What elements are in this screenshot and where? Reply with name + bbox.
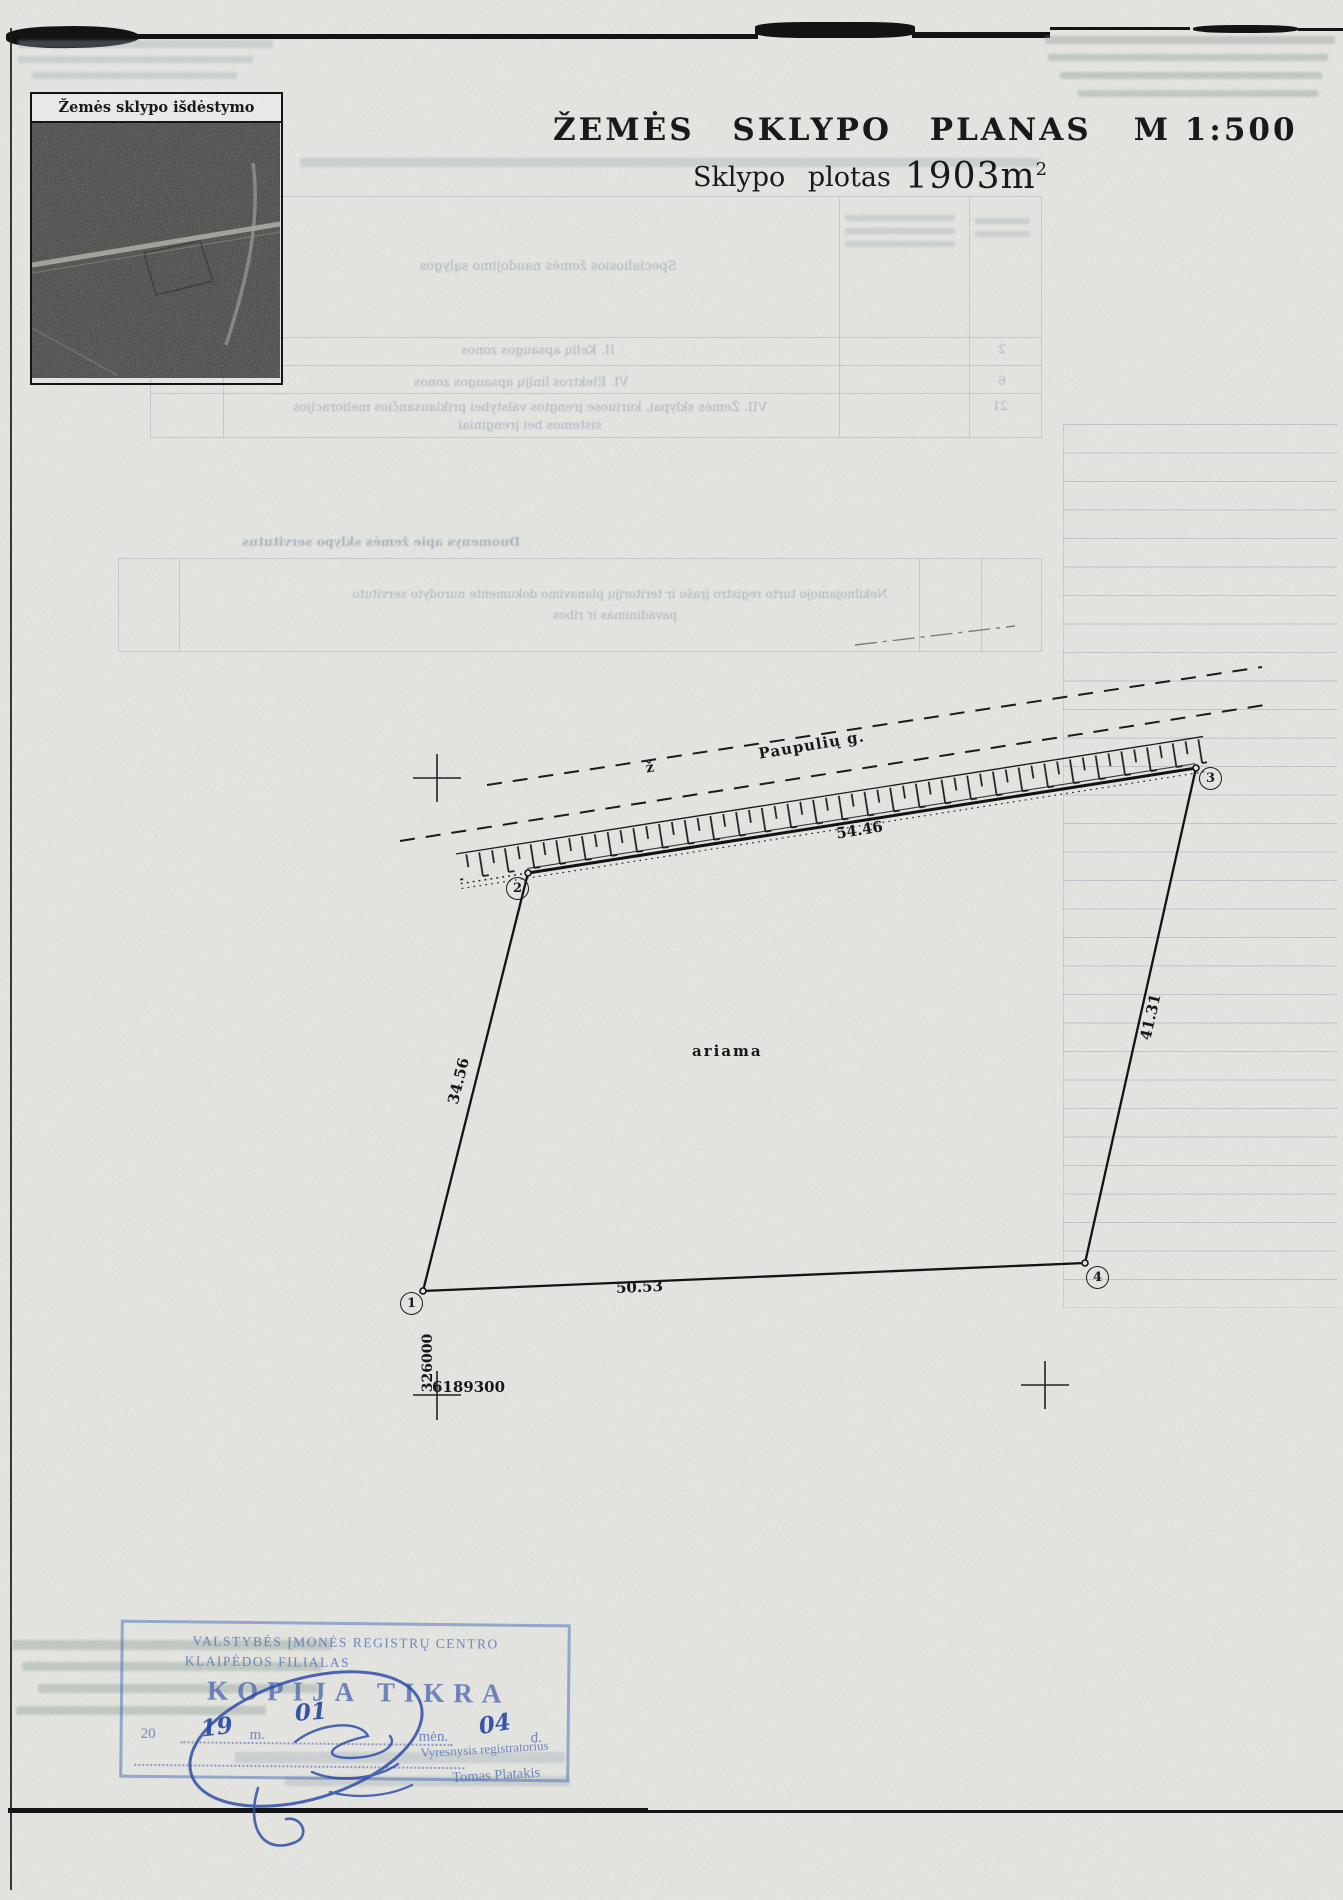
bleed-text-servitudes-col1: Nekilnojamojo turto registro įrašo ir te… (340, 588, 900, 602)
bleed-bar (975, 231, 1030, 237)
bleed-value-3: 21 (986, 400, 1014, 414)
bleed-value-1: 2 (990, 343, 1014, 357)
grid-cross-marks (413, 754, 1069, 1420)
area-value: 1903m2 (905, 156, 1048, 197)
stamp-date-dots (181, 1740, 453, 1746)
bleed-bar (1060, 72, 1322, 79)
bleed-text-special-conditions: Specialiosios žemės naudojimo sąlygos (328, 260, 768, 275)
bleed-table-servitudes (118, 558, 1042, 652)
plan-subtitle-row: Sklypo plotas 1903m2 (693, 156, 1048, 197)
aerial-photo (30, 121, 283, 385)
stamp-org-line2: KLAIPĖDOS FILIALAS (137, 1653, 397, 1672)
street-marker-letter: ž (645, 759, 655, 776)
scan-artifact-left-edge (10, 28, 12, 1890)
stamp-signature-dots (134, 1763, 464, 1769)
handwritten-year: 19 (199, 1712, 234, 1743)
bleed-bar (18, 40, 273, 48)
bleed-text-row3b: sistemos bei įrenginiai (380, 418, 680, 432)
bleed-bar (1045, 36, 1335, 44)
plan-title: ŽEMĖS SKLYPO PLANAS (553, 112, 1092, 148)
scan-artifact-top-line2 (912, 32, 1050, 38)
scan-artifact-top-line4 (1193, 25, 1298, 33)
bleed-text-row3a: VII. Žemės sklypai, kuriuose įrengtos va… (250, 400, 810, 414)
schema-caption: Žemės sklypo išdėstymo schema (30, 92, 283, 121)
dim-left-label: 34.56 (444, 1056, 473, 1106)
handwritten-day: 04 (477, 1708, 513, 1740)
area-exponent: 2 (1036, 159, 1048, 180)
bleed-text-row1: II. Kelių apsaugos zonos (388, 343, 688, 357)
scale-label: M 1:500 (1134, 112, 1298, 148)
bleed-text-servitudes-header: Duomenys apie žemės sklypo servitutus (231, 535, 531, 549)
bleed-row-lines (1063, 424, 1337, 1308)
bleed-bar (1078, 90, 1318, 97)
bleed-bar (1048, 54, 1328, 61)
bleed-bar (975, 218, 1030, 224)
scanned-land-plan-page: Specialiosios žemės naudojimo sąlygos II… (0, 0, 1343, 1900)
bleed-bar (845, 228, 955, 234)
dim-bottom-label: 50.53 (616, 1277, 664, 1297)
dim-top-label: 54.46 (835, 817, 884, 842)
bleed-text-row2: VI. Elektros linijų apsaugos zonos (351, 375, 691, 389)
stamp-org-line1: VALSTYBĖS ĮMONĖS REGISTRŲ CENTRO (124, 1633, 568, 1654)
point-marker-1: 1 (400, 1292, 423, 1315)
point-marker-3: 3 (1199, 767, 1222, 790)
copy-certification-label: KOPIJA TIKRA (207, 1676, 511, 1710)
plan-title-row: ŽEMĖS SKLYPO PLANAS M 1:500 (553, 112, 1298, 148)
scan-artifact-top-blob2 (755, 22, 915, 38)
scan-artifact-bottom-rule2 (8, 1808, 648, 1810)
handwritten-month: 01 (294, 1697, 328, 1726)
scan-artifact-bottom-rule (8, 1810, 1343, 1813)
scan-artifact-top-line5 (1298, 28, 1343, 31)
bleed-bar (32, 72, 237, 79)
area-label: Sklypo plotas (693, 156, 891, 193)
landuse-label: ariama (692, 1042, 763, 1060)
street-label: Paupulių g. (757, 727, 866, 762)
schema-box: Žemės sklypo išdėstymo schema (30, 92, 283, 385)
bleed-bar (18, 56, 253, 63)
bleed-text-servitudes-col2: pavadinimas ir ribos (515, 609, 715, 623)
scan-artifact-top-line (138, 34, 758, 39)
point-marker-4: 4 (1086, 1266, 1109, 1289)
stamp-date-prefix: 20 (141, 1726, 156, 1743)
scan-artifact-top-line3 (1050, 27, 1190, 30)
bleed-bar (845, 215, 955, 221)
bleed-bar (845, 241, 955, 247)
bleed-value-2: 6 (990, 375, 1014, 389)
point-marker-2: 2 (506, 877, 529, 900)
grid-northing-label: 6189300 (432, 1378, 505, 1396)
registry-stamp: VALSTYBĖS ĮMONĖS REGISTRŲ CENTRO KLAIPĖD… (119, 1620, 571, 1783)
